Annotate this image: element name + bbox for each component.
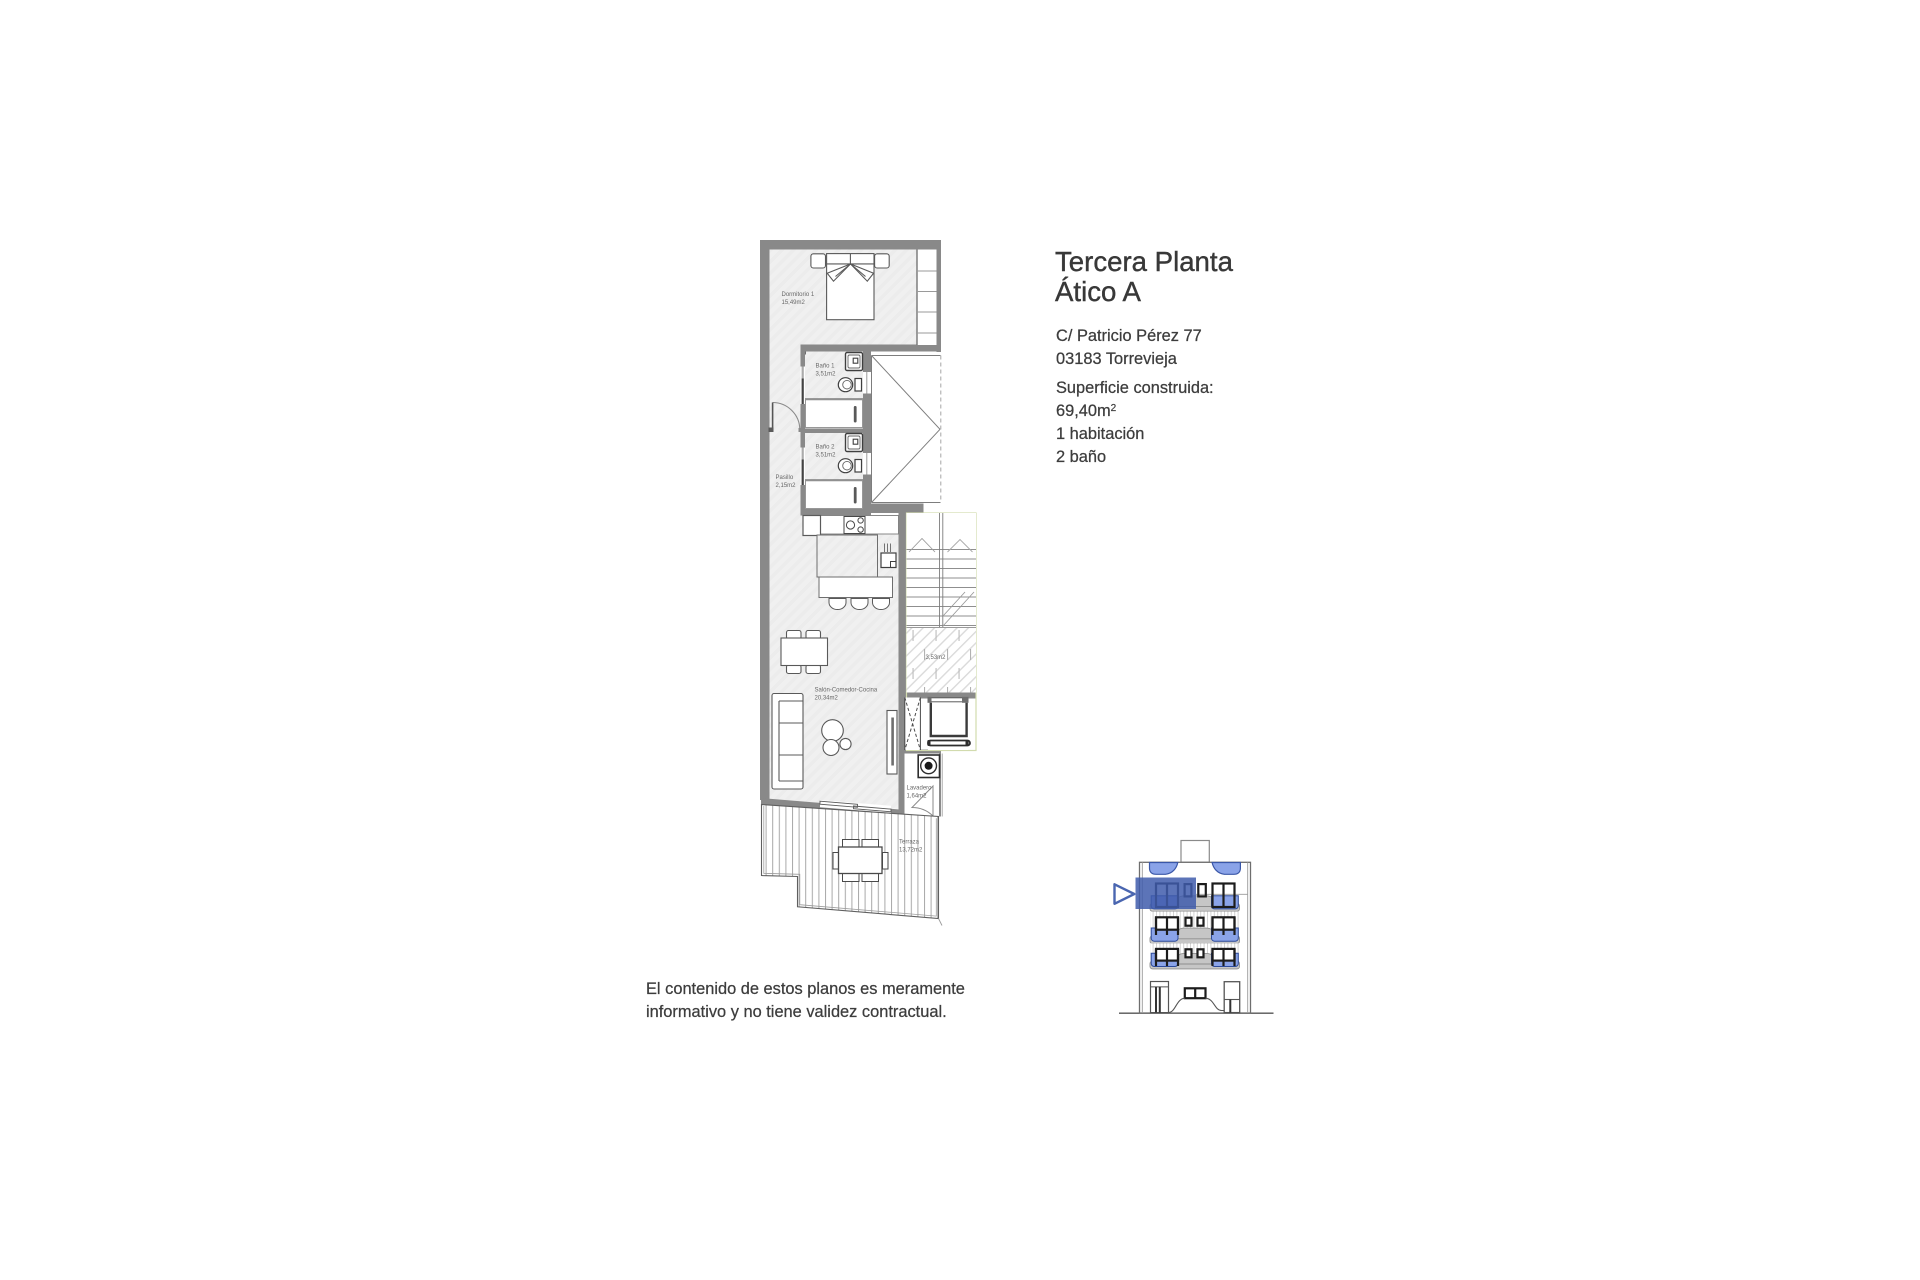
- svg-text:20,34m2: 20,34m2: [815, 696, 839, 702]
- svg-text:Salón-Comedor-Cocina: Salón-Comedor-Cocina: [815, 688, 878, 694]
- svg-text:Baño 2: Baño 2: [816, 445, 836, 451]
- svg-text:3,53m2: 3,53m2: [926, 655, 947, 661]
- svg-text:2,15m2: 2,15m2: [776, 483, 797, 489]
- svg-text:Lavadero: Lavadero: [907, 786, 933, 792]
- svg-text:15,49m2: 15,49m2: [782, 300, 806, 306]
- svg-text:3,51m2: 3,51m2: [816, 372, 837, 378]
- svg-text:1,64m2: 1,64m2: [907, 794, 928, 800]
- svg-text:Terraza: Terraza: [899, 840, 920, 846]
- svg-text:Dormitorio 1: Dormitorio 1: [782, 292, 815, 298]
- svg-text:Baño 1: Baño 1: [816, 364, 836, 370]
- svg-text:3,51m2: 3,51m2: [816, 453, 837, 459]
- svg-text:13,72m2: 13,72m2: [899, 848, 923, 854]
- svg-text:Pasillo: Pasillo: [776, 475, 794, 481]
